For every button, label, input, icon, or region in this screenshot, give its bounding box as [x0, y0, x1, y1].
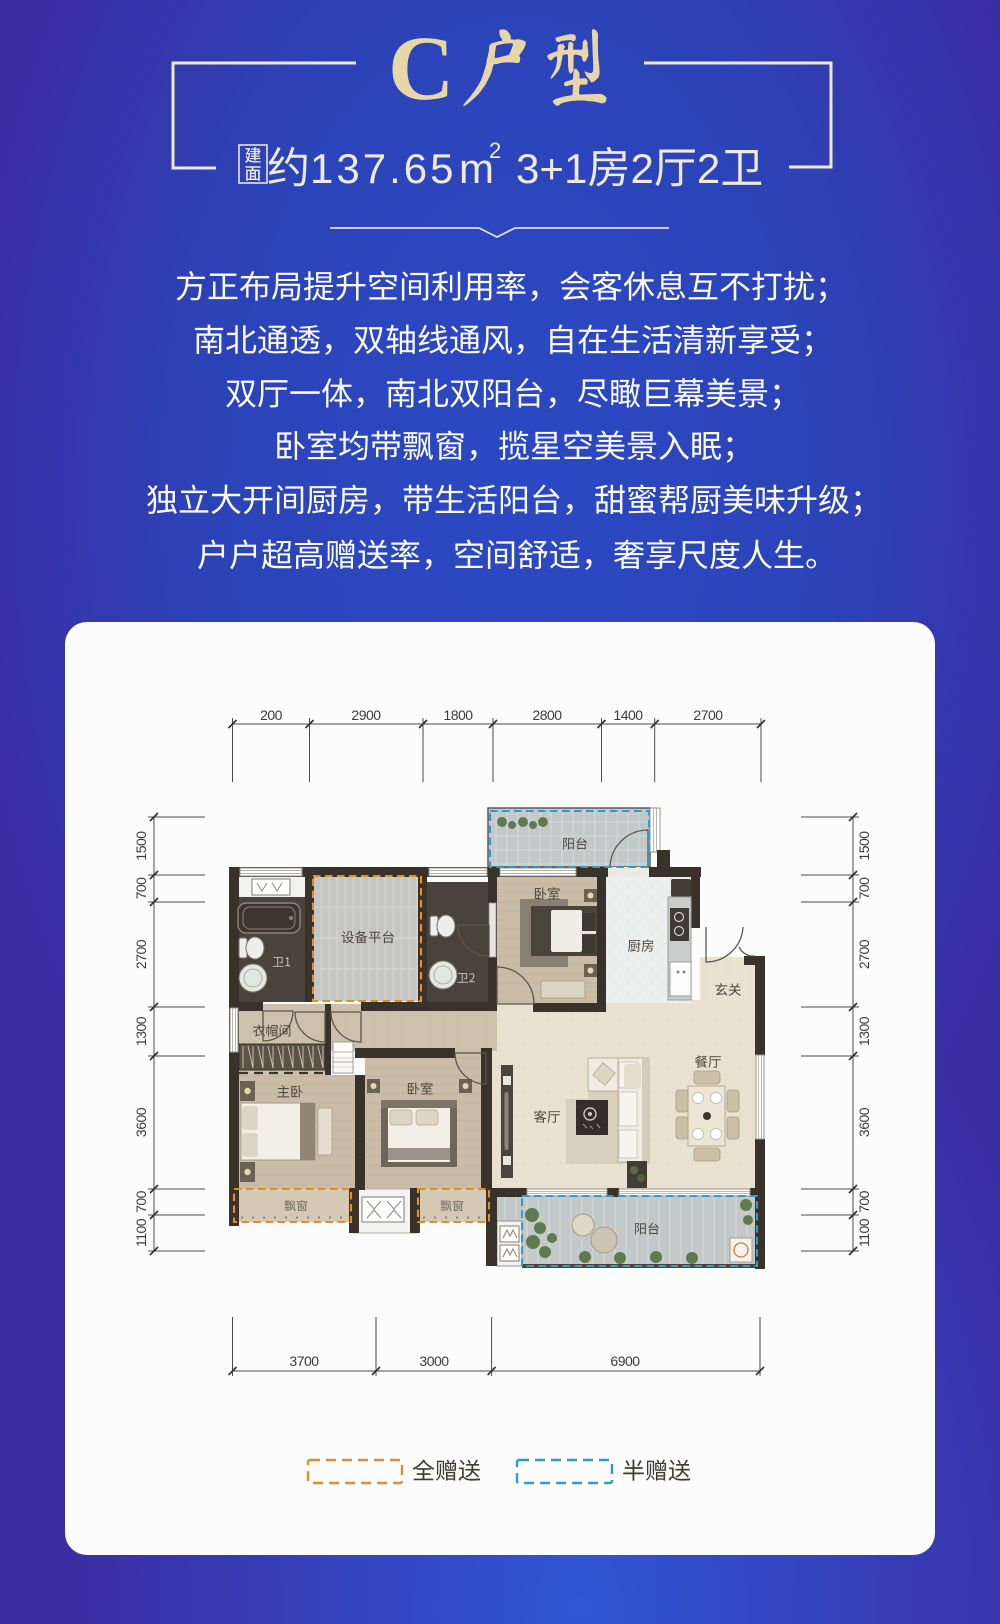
- svg-text:1500: 1500: [856, 831, 872, 861]
- svg-text:2700: 2700: [693, 707, 723, 723]
- svg-text:6900: 6900: [610, 1353, 640, 1369]
- svg-text:700: 700: [133, 1190, 149, 1213]
- svg-text:2: 2: [697, 145, 720, 192]
- svg-text:1500: 1500: [133, 831, 149, 861]
- svg-text:200: 200: [260, 707, 283, 723]
- svg-text:2: 2: [489, 138, 501, 163]
- svg-text:2: 2: [631, 145, 654, 192]
- svg-text:3: 3: [516, 145, 539, 192]
- svg-text:700: 700: [133, 877, 149, 900]
- svg-text:3600: 3600: [133, 1107, 149, 1137]
- svg-text:700: 700: [856, 1190, 872, 1213]
- svg-text:1400: 1400: [613, 707, 643, 723]
- svg-text:2700: 2700: [133, 939, 149, 969]
- svg-text:3700: 3700: [289, 1353, 319, 1369]
- svg-text:3600: 3600: [856, 1107, 872, 1137]
- svg-text:1100: 1100: [856, 1218, 872, 1247]
- svg-text:1: 1: [564, 145, 587, 192]
- svg-text:137.65: 137.65: [310, 145, 456, 192]
- svg-text:700: 700: [856, 877, 872, 900]
- svg-text:1800: 1800: [443, 707, 473, 723]
- svg-text:3000: 3000: [419, 1353, 449, 1369]
- svg-text:1300: 1300: [133, 1016, 149, 1046]
- svg-text:+: +: [539, 145, 564, 192]
- svg-text:2800: 2800: [532, 707, 562, 723]
- svg-text:1300: 1300: [856, 1016, 872, 1046]
- svg-text:2700: 2700: [856, 939, 872, 969]
- svg-text:2900: 2900: [351, 707, 381, 723]
- svg-text:1100: 1100: [133, 1218, 149, 1247]
